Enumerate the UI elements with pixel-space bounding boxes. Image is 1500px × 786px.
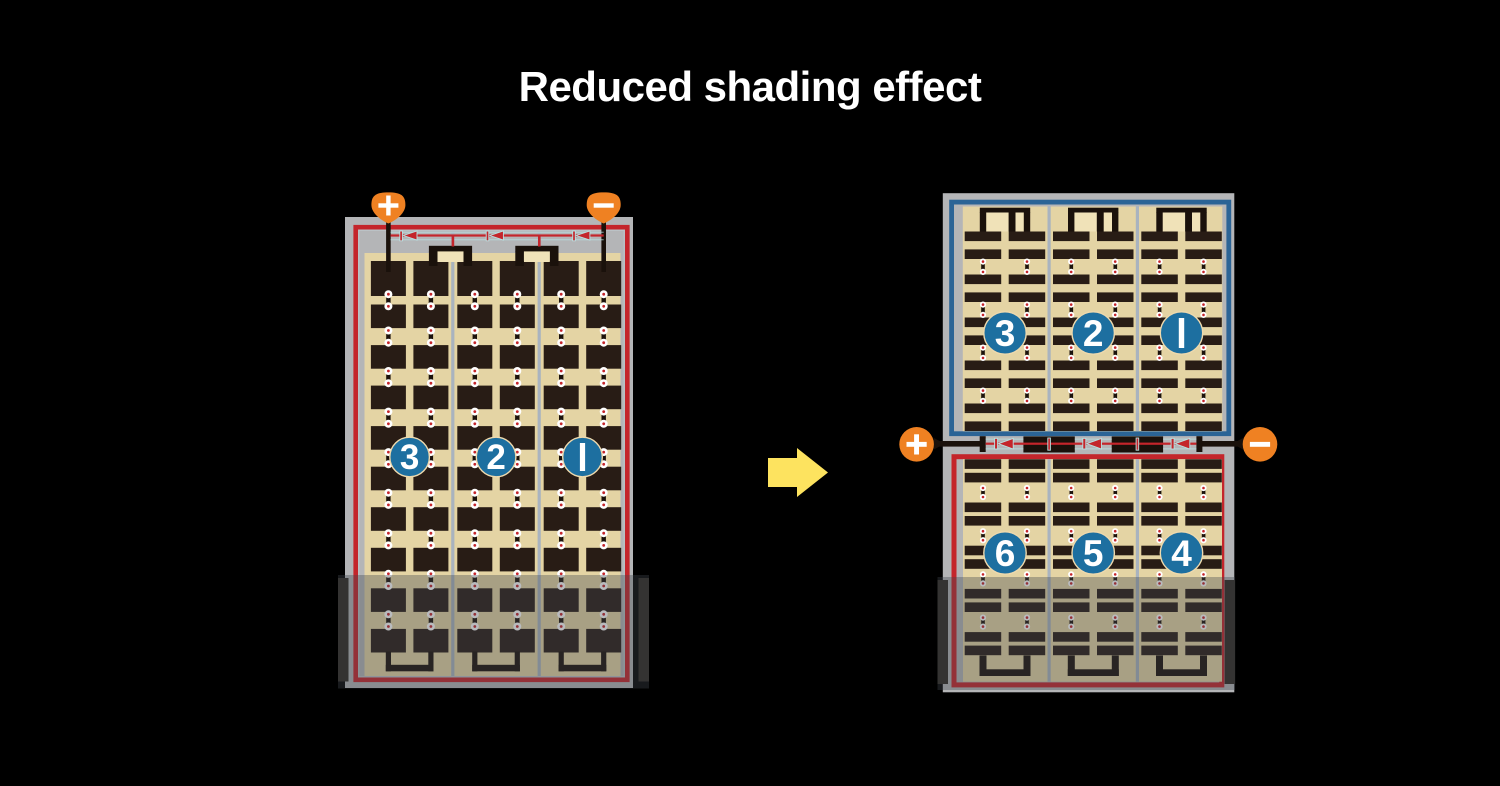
svg-text:Reduced shading effect: Reduced shading effect <box>519 63 982 110</box>
svg-text:6: 6 <box>995 533 1016 574</box>
svg-text:3: 3 <box>400 438 419 477</box>
svg-text:5: 5 <box>1083 533 1104 574</box>
svg-text:2: 2 <box>1083 313 1104 354</box>
svg-text:2: 2 <box>486 438 505 477</box>
svg-text:3: 3 <box>995 313 1016 354</box>
svg-text:4: 4 <box>1171 533 1192 574</box>
